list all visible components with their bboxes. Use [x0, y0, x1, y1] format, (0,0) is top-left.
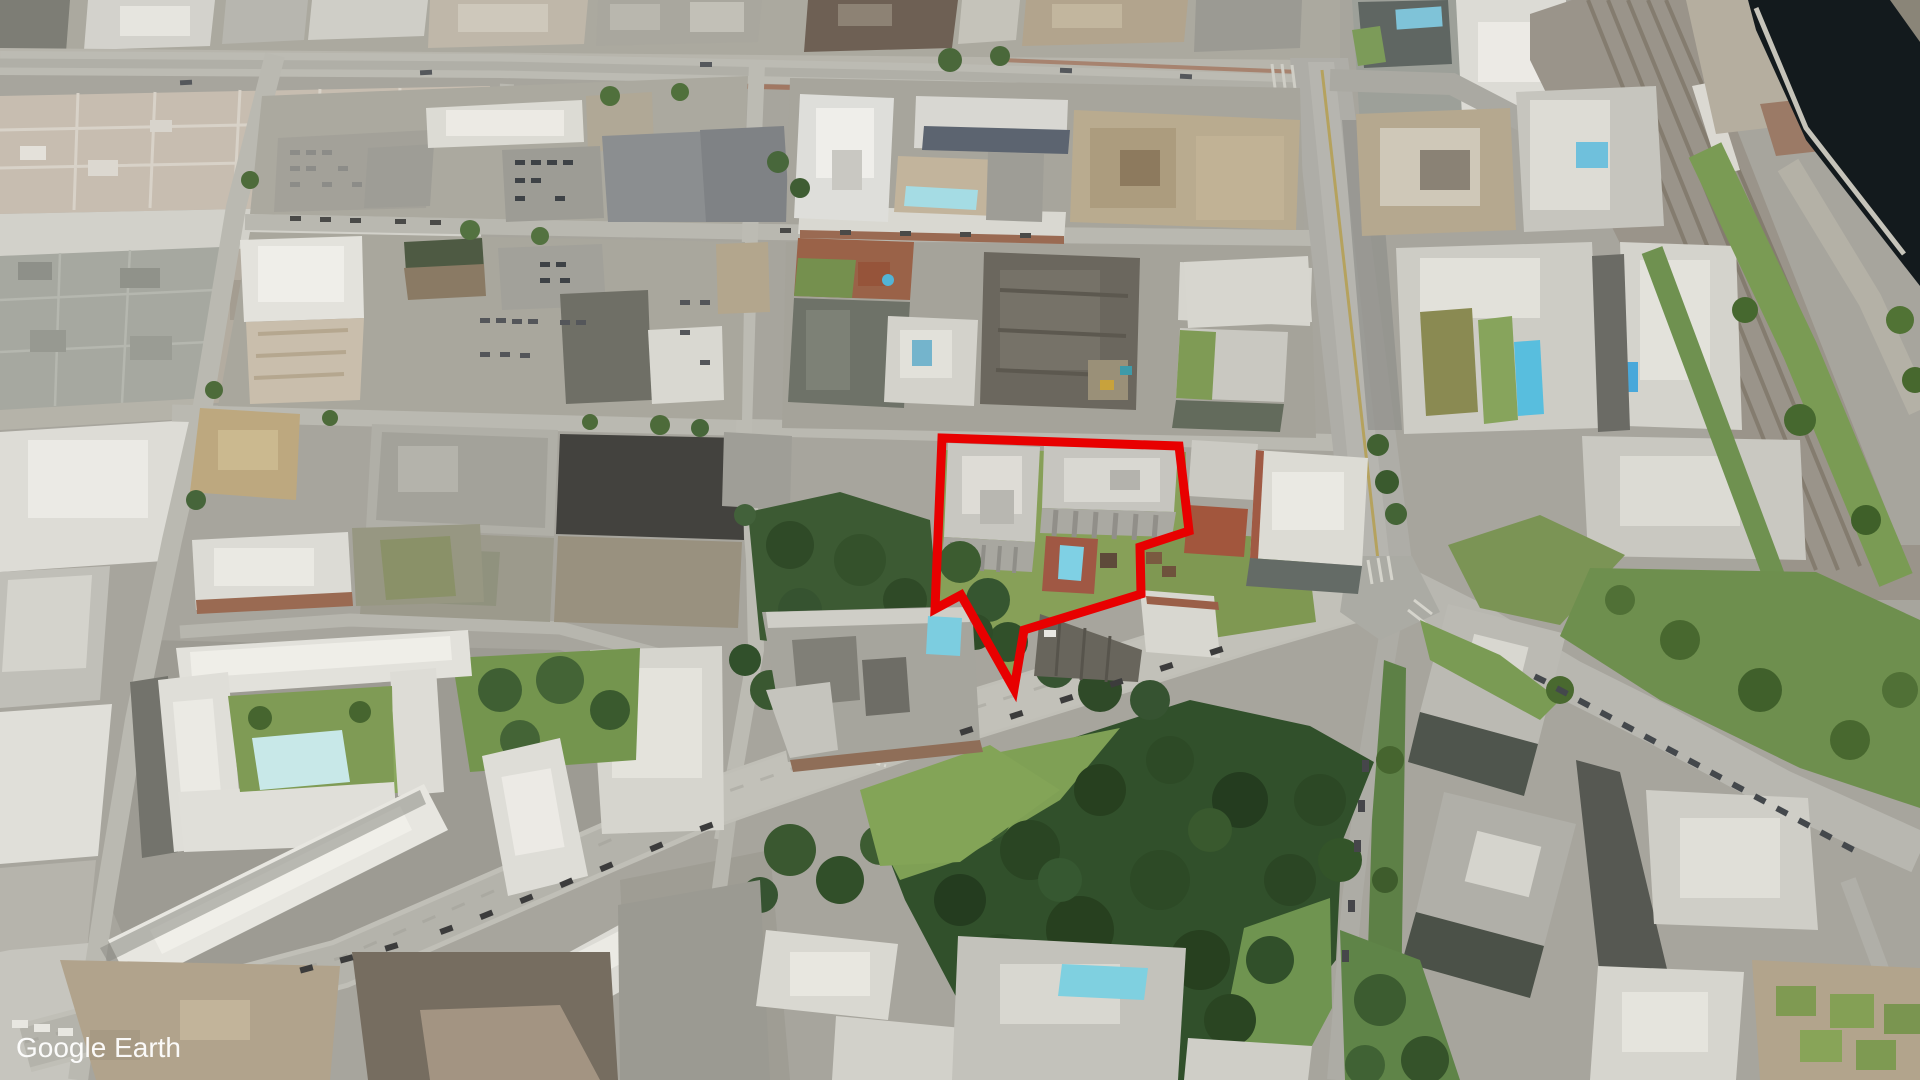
svg-text:Google Earth: Google Earth — [16, 1032, 181, 1063]
